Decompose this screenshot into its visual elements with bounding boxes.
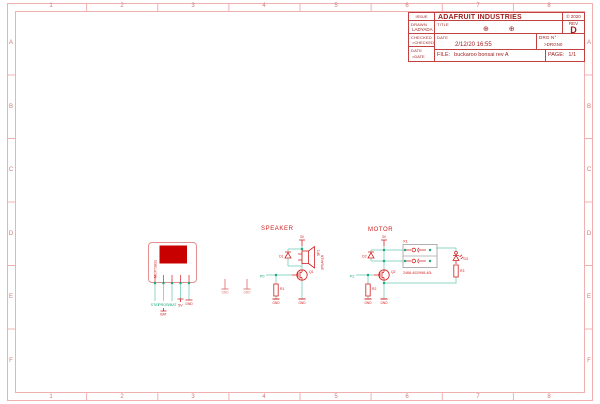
gate-net-label: P0 xyxy=(260,274,266,279)
power-flag xyxy=(299,240,305,246)
row-ref-left: D xyxy=(7,230,15,238)
titleblock-checked-cell: CHECKED >CHECKED xyxy=(408,33,435,47)
mosfet-ref: Q2 xyxy=(391,270,396,274)
module-pin-wires[interactable] xyxy=(155,284,189,301)
resistor-ref: R3 xyxy=(460,269,464,273)
file-label: FILE: xyxy=(437,52,450,58)
col-ref-top: 6 xyxy=(401,2,413,10)
diode-ref: D2 xyxy=(362,255,366,259)
gnd-label: GND xyxy=(298,301,306,305)
row-ref-left: A xyxy=(7,39,15,47)
wires[interactable] xyxy=(266,246,302,299)
row-ref-left: F xyxy=(7,357,15,365)
junction xyxy=(367,274,369,276)
motor-connector[interactable]: X1 2468-402/998-40L xyxy=(403,239,437,276)
column-ticks xyxy=(87,4,514,401)
diode[interactable] xyxy=(285,252,291,258)
power-flag xyxy=(178,299,184,302)
titleblock-rev-cell: REV D xyxy=(562,20,585,34)
col-ref-bottom: 1 xyxy=(45,393,57,401)
diode[interactable] xyxy=(368,252,374,258)
mosfet[interactable] xyxy=(374,270,389,280)
speaker-symbol[interactable] xyxy=(298,247,315,269)
speaker-circuit[interactable]: SPEAKER 3V D1 SP1 xyxy=(260,226,325,305)
titleblock-drg-cell: DRG N° >DRGN0 xyxy=(536,33,585,50)
gnd-label: GND xyxy=(380,301,388,305)
row-ticks xyxy=(8,75,593,329)
page-value: 1/1 xyxy=(568,52,576,58)
section-title: MOTOR xyxy=(368,227,393,233)
drg-label: DRG N° xyxy=(539,35,557,40)
date-value: 2/12/20 16:55 xyxy=(455,42,492,48)
sheet-frame xyxy=(8,4,593,401)
led[interactable] xyxy=(453,251,463,264)
bat-flag xyxy=(161,308,167,311)
col-ref-bottom: 3 xyxy=(187,393,199,401)
junction xyxy=(275,274,277,276)
row-ref-left: C xyxy=(7,166,15,174)
junction xyxy=(383,260,385,262)
bat-net-label: BAT xyxy=(160,313,166,317)
module-board-body[interactable] xyxy=(160,246,188,264)
titleblock-date-cell: DATE 2/12/20 16:55 xyxy=(434,33,537,50)
page-label: PAGE: xyxy=(548,52,564,58)
col-ref-top: 2 xyxy=(116,2,128,10)
col-ref-top: 7 xyxy=(472,2,484,10)
titleblock-date-left-cell: DATE >DATE xyxy=(408,46,435,62)
row-ref-right: F xyxy=(585,357,593,365)
gate-net-label: P2 xyxy=(350,274,356,279)
gnd-label: GND xyxy=(272,301,280,305)
motor-circuit[interactable]: MOTOR 3V D2 xyxy=(350,227,468,305)
row-ref-right: C xyxy=(585,166,593,174)
col-ref-bottom: 2 xyxy=(116,393,128,401)
mosfet-ref: Q1 xyxy=(309,270,314,274)
titleblock-drawn-cell: DRAWN LADYADA xyxy=(408,20,435,34)
module-value-label: MCP73831 xyxy=(154,260,158,278)
col-ref-bottom: 7 xyxy=(472,393,484,401)
junction xyxy=(383,249,385,251)
col-ref-top: 8 xyxy=(543,2,555,10)
date-left-label: DATE xyxy=(411,48,422,53)
row-ref-left: B xyxy=(7,103,15,111)
power-net-label: 3V xyxy=(300,235,305,239)
titleblock-title-cell: TITLE ⊕ ⊕ xyxy=(434,20,563,34)
gnd-label: GND xyxy=(243,291,251,295)
led-ref: D3 xyxy=(464,257,468,261)
resistor-ref: R2 xyxy=(372,287,376,291)
resistor[interactable] xyxy=(454,265,458,277)
col-ref-top: 4 xyxy=(258,2,270,10)
gnd-label: GND xyxy=(221,291,229,295)
row-ref-right: A xyxy=(585,39,593,47)
module-pins xyxy=(155,275,189,283)
resistor[interactable] xyxy=(366,284,370,296)
diode-ref: D1 xyxy=(279,255,283,259)
col-ref-top: 3 xyxy=(187,2,199,10)
power-net-label: 5V xyxy=(178,304,183,308)
col-ref-bottom: 5 xyxy=(330,393,342,401)
connector-value: 2468-402/998-40L xyxy=(403,271,432,275)
col-ref-bottom: 6 xyxy=(401,393,413,401)
charger-module[interactable]: MCP73831 STAT PROG VBAT 5V xyxy=(149,243,197,317)
drawn-value: LADYADA xyxy=(412,27,433,32)
mosfet[interactable] xyxy=(292,270,307,280)
resistor[interactable] xyxy=(274,284,278,296)
titleblock-file-cell: FILE:buckaroo bonsai rev A xyxy=(434,49,546,62)
speaker-value: SPEAKER xyxy=(321,254,325,270)
section-title: SPEAKER xyxy=(261,226,294,232)
col-ref-top: 1 xyxy=(45,2,57,10)
date-label: DATE xyxy=(437,35,448,40)
power-flag xyxy=(381,240,387,246)
drg-value: >DRGN0 xyxy=(544,42,562,47)
row-ref-right: E xyxy=(585,293,593,301)
gnd-label: GND xyxy=(364,301,372,305)
resistor-ref: R1 xyxy=(280,287,284,291)
connector-ref: X1 xyxy=(403,239,409,244)
row-ref-right: B xyxy=(585,103,593,111)
title-placeholder-symbols: ⊕ ⊕ xyxy=(483,25,524,33)
mid-gnd-flag-2[interactable]: GND xyxy=(243,279,251,295)
col-ref-top: 5 xyxy=(330,2,342,10)
row-ref-left: E xyxy=(7,293,15,301)
titleblock-page-cell: PAGE:1/1 xyxy=(545,49,585,62)
power-net-label: 3V xyxy=(382,235,387,239)
mid-gnd-flag-1[interactable]: GND xyxy=(221,279,229,295)
junction xyxy=(301,248,303,250)
net-label: VBAT xyxy=(167,303,177,307)
col-ref-bottom: 4 xyxy=(258,393,270,401)
row-ref-right: D xyxy=(585,230,593,238)
schematic-canvas[interactable]: MCP73831 STAT PROG VBAT 5V xyxy=(0,0,600,404)
title-label: TITLE xyxy=(437,22,449,27)
date-left-value: >DATE xyxy=(412,54,425,59)
junction xyxy=(383,282,385,284)
col-ref-bottom: 8 xyxy=(543,393,555,401)
gnd-net-label: GND xyxy=(185,302,193,306)
checked-value: >CHECKED xyxy=(412,40,434,45)
file-value: buckaroo bonsai rev A xyxy=(454,52,508,58)
